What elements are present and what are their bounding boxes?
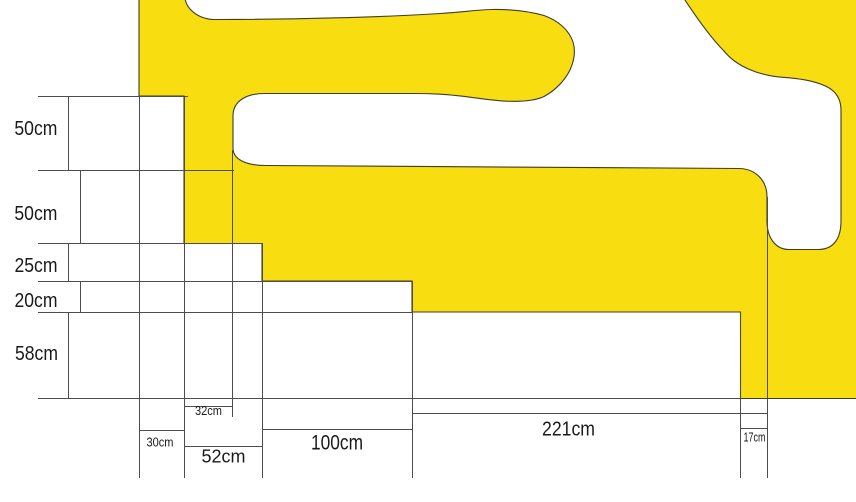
- svg-text:17cm: 17cm: [744, 431, 766, 445]
- svg-text:58cm: 58cm: [15, 342, 58, 365]
- svg-text:50cm: 50cm: [14, 202, 57, 225]
- svg-text:52cm: 52cm: [202, 447, 246, 467]
- svg-text:20cm: 20cm: [15, 289, 58, 312]
- svg-text:221cm: 221cm: [542, 418, 595, 441]
- svg-text:32cm: 32cm: [195, 403, 222, 418]
- svg-text:50cm: 50cm: [14, 117, 57, 140]
- svg-text:25cm: 25cm: [15, 254, 58, 277]
- svg-text:30cm: 30cm: [147, 435, 174, 450]
- svg-text:100cm: 100cm: [311, 432, 363, 455]
